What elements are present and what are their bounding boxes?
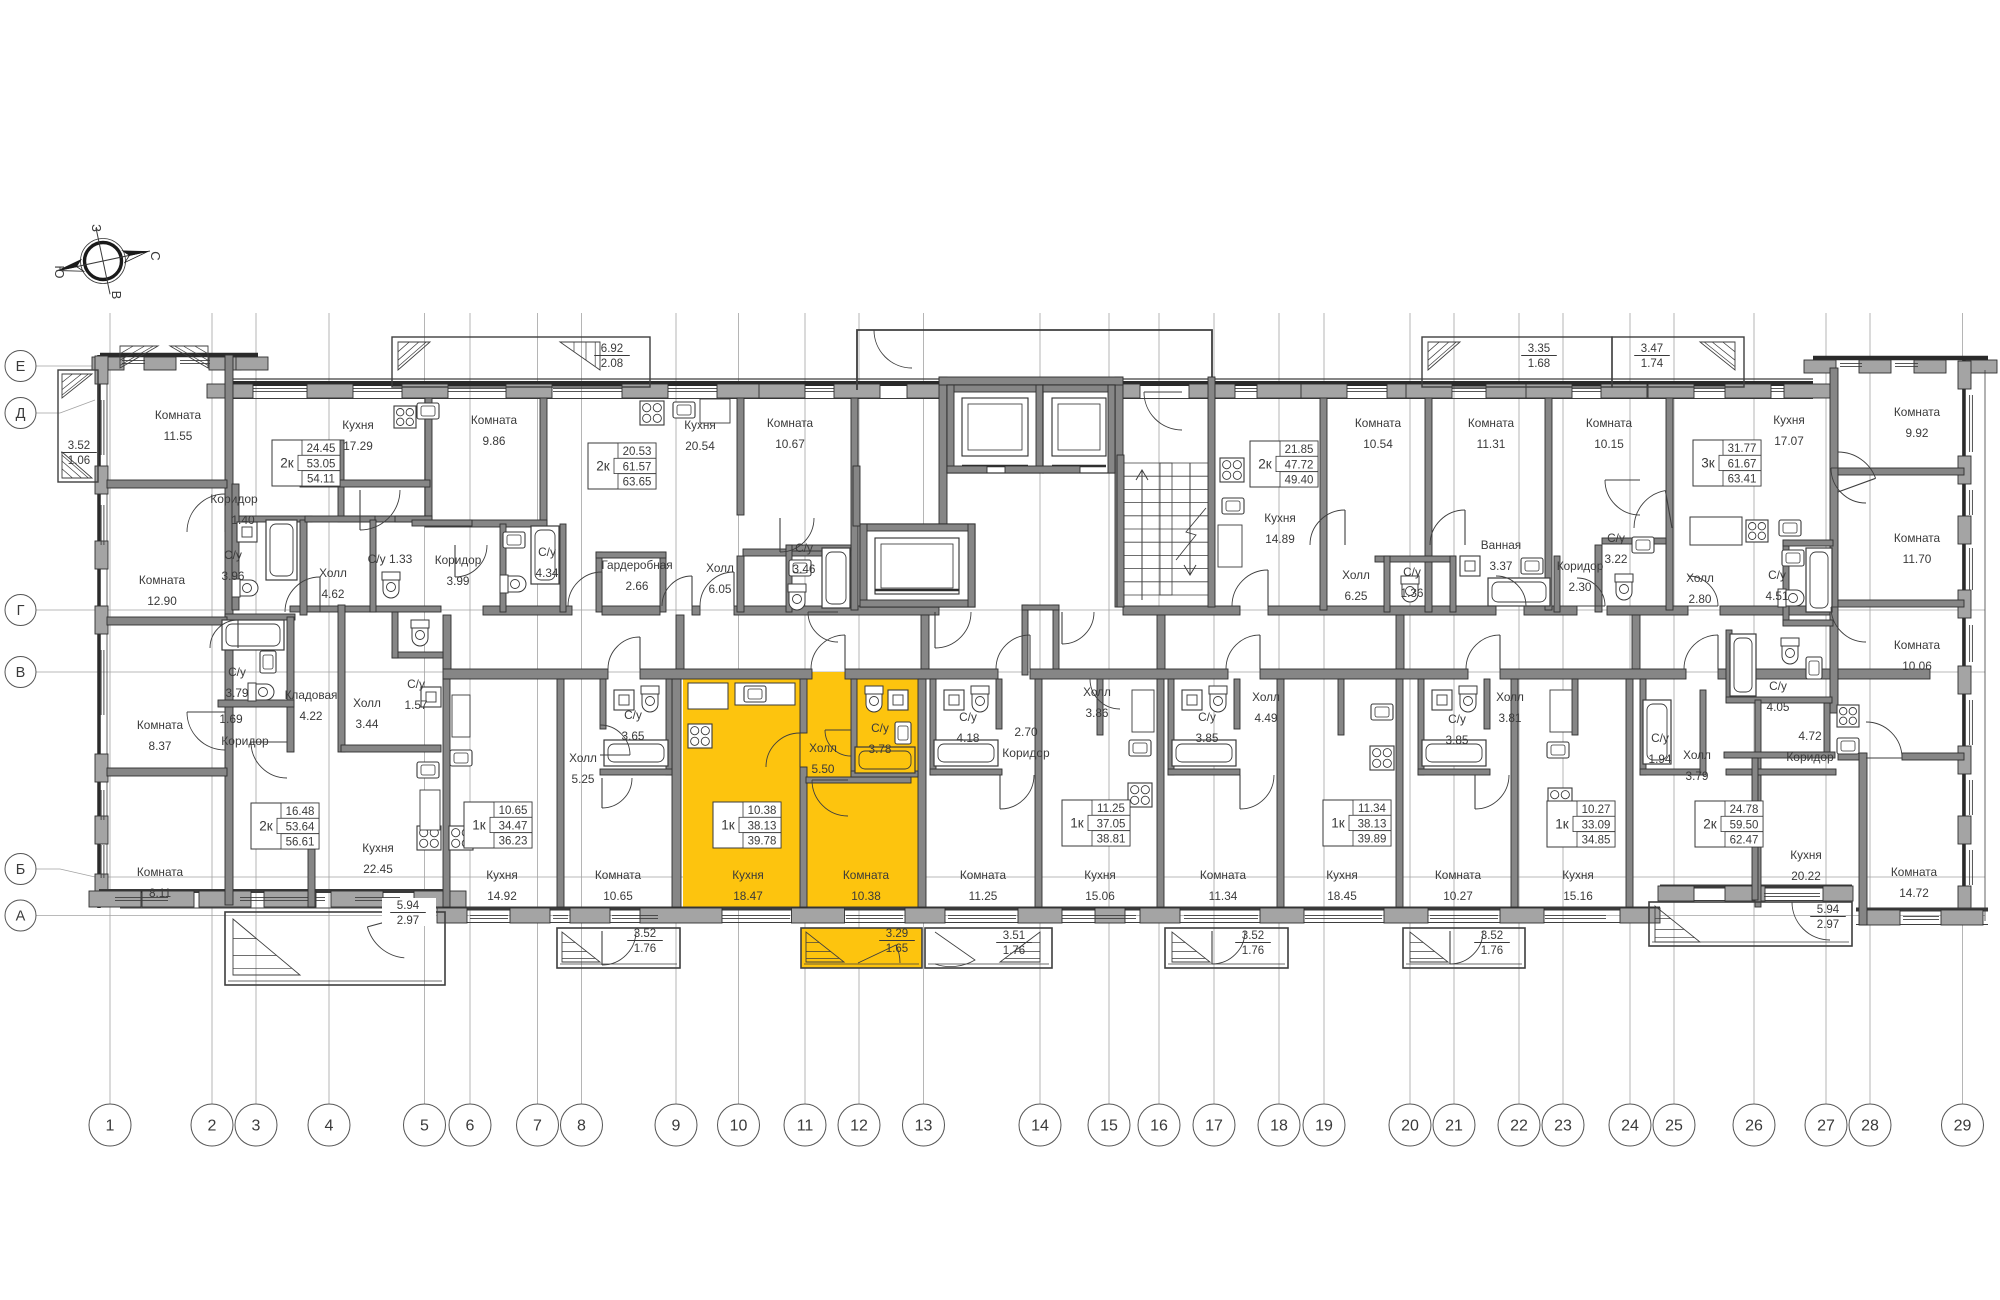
svg-text:4.62: 4.62 xyxy=(322,587,345,601)
svg-text:Коридор: Коридор xyxy=(221,734,269,748)
svg-text:1.74: 1.74 xyxy=(1641,358,1664,370)
svg-text:11: 11 xyxy=(797,1118,814,1135)
svg-text:8.11: 8.11 xyxy=(149,886,171,900)
svg-text:53.05: 53.05 xyxy=(307,458,336,470)
svg-text:Б: Б xyxy=(16,862,26,878)
svg-text:Комната: Комната xyxy=(767,416,814,430)
svg-text:14.72: 14.72 xyxy=(1899,886,1929,900)
svg-text:С/у: С/у xyxy=(1198,710,1216,724)
svg-text:А: А xyxy=(16,909,26,925)
svg-text:2к: 2к xyxy=(1703,817,1717,832)
svg-text:6.92: 6.92 xyxy=(601,343,623,355)
svg-text:4.49: 4.49 xyxy=(1255,711,1278,725)
svg-text:Комната: Комната xyxy=(1468,416,1515,430)
svg-text:Кухня: Кухня xyxy=(362,841,394,855)
svg-text:В: В xyxy=(16,665,26,681)
svg-text:Комната: Комната xyxy=(1894,638,1941,652)
svg-text:5.94: 5.94 xyxy=(1817,904,1840,916)
svg-text:9: 9 xyxy=(672,1118,681,1135)
svg-text:Холл: Холл xyxy=(1083,685,1111,699)
svg-text:С/у: С/у xyxy=(407,677,425,691)
svg-text:С/у: С/у xyxy=(228,665,246,679)
svg-text:29: 29 xyxy=(1954,1118,1972,1135)
svg-text:61.67: 61.67 xyxy=(1728,458,1757,470)
svg-text:31.77: 31.77 xyxy=(1728,443,1757,455)
svg-text:2.08: 2.08 xyxy=(601,358,623,370)
svg-text:10.27: 10.27 xyxy=(1443,889,1473,903)
svg-text:17: 17 xyxy=(1205,1118,1223,1135)
svg-text:Комната: Комната xyxy=(595,868,642,882)
svg-text:11.31: 11.31 xyxy=(1477,437,1506,451)
svg-text:36.23: 36.23 xyxy=(499,836,528,848)
svg-text:С/у: С/у xyxy=(1769,679,1787,693)
svg-text:Коридор: Коридор xyxy=(210,492,258,506)
svg-text:Холл: Холл xyxy=(1683,748,1711,762)
svg-text:63.65: 63.65 xyxy=(623,477,652,489)
svg-text:20.22: 20.22 xyxy=(1791,869,1821,883)
svg-text:С/у: С/у xyxy=(1651,731,1669,745)
svg-text:5.94: 5.94 xyxy=(397,900,420,912)
svg-text:Холл: Холл xyxy=(1496,690,1524,704)
svg-text:16: 16 xyxy=(1150,1118,1168,1135)
svg-text:3.37: 3.37 xyxy=(1490,559,1513,573)
svg-text:3.65: 3.65 xyxy=(622,729,645,743)
svg-text:12: 12 xyxy=(850,1118,868,1135)
svg-text:26: 26 xyxy=(1745,1118,1763,1135)
svg-text:2.97: 2.97 xyxy=(1817,919,1839,931)
svg-text:3.35: 3.35 xyxy=(1528,343,1550,355)
svg-text:20.54: 20.54 xyxy=(685,439,715,453)
svg-text:10.38: 10.38 xyxy=(748,805,777,817)
svg-text:1.65: 1.65 xyxy=(886,943,908,955)
svg-text:20: 20 xyxy=(1401,1118,1419,1135)
svg-text:С: С xyxy=(148,251,163,260)
svg-text:С/у: С/у xyxy=(624,708,642,722)
svg-text:С/у: С/у xyxy=(871,721,889,735)
svg-text:5.25: 5.25 xyxy=(572,772,595,786)
svg-text:56.61: 56.61 xyxy=(286,837,315,849)
svg-text:Комната: Комната xyxy=(1435,868,1482,882)
svg-text:18.47: 18.47 xyxy=(733,889,763,903)
svg-text:4.34: 4.34 xyxy=(536,566,559,580)
svg-text:22.45: 22.45 xyxy=(363,862,393,876)
svg-text:3.51: 3.51 xyxy=(1003,930,1025,942)
svg-text:3: 3 xyxy=(252,1118,261,1135)
svg-text:3.44: 3.44 xyxy=(356,717,379,731)
svg-text:24.78: 24.78 xyxy=(1730,804,1759,816)
svg-text:Кухня: Кухня xyxy=(684,418,716,432)
svg-text:6.05: 6.05 xyxy=(709,582,732,596)
svg-text:39.78: 39.78 xyxy=(748,836,777,848)
svg-text:С/у: С/у xyxy=(1448,712,1466,726)
svg-text:Г: Г xyxy=(17,603,25,619)
svg-text:4.05: 4.05 xyxy=(1767,700,1790,714)
svg-text:10.15: 10.15 xyxy=(1594,437,1624,451)
svg-text:Комната: Комната xyxy=(1586,416,1633,430)
svg-text:Холл: Холл xyxy=(1686,571,1714,585)
svg-text:Комната: Комната xyxy=(960,868,1007,882)
svg-text:Комната: Комната xyxy=(1355,416,1402,430)
svg-text:63.41: 63.41 xyxy=(1728,474,1757,486)
svg-text:С/у: С/у xyxy=(224,548,242,562)
svg-text:3.46: 3.46 xyxy=(793,562,816,576)
svg-text:2к: 2к xyxy=(596,459,610,474)
svg-text:11.34: 11.34 xyxy=(1209,889,1238,903)
svg-text:Холл: Холл xyxy=(809,741,837,755)
svg-text:Гардеробная: Гардеробная xyxy=(601,558,672,572)
svg-text:1.40: 1.40 xyxy=(231,513,255,527)
svg-text:Кухня: Кухня xyxy=(342,418,374,432)
svg-text:15.16: 15.16 xyxy=(1563,889,1593,903)
svg-text:3.52: 3.52 xyxy=(68,440,90,452)
svg-text:Комната: Комната xyxy=(137,718,184,732)
svg-text:24: 24 xyxy=(1621,1118,1639,1135)
svg-text:1.94: 1.94 xyxy=(1649,752,1672,766)
svg-text:12.90: 12.90 xyxy=(147,594,177,608)
svg-text:11.25: 11.25 xyxy=(1097,803,1125,815)
svg-text:59.50: 59.50 xyxy=(1730,819,1759,831)
svg-text:Кухня: Кухня xyxy=(1084,868,1116,882)
svg-text:Комната: Комната xyxy=(137,865,184,879)
svg-text:14.92: 14.92 xyxy=(487,889,517,903)
svg-text:10.27: 10.27 xyxy=(1582,804,1611,816)
svg-text:14: 14 xyxy=(1031,1118,1049,1135)
svg-text:20.53: 20.53 xyxy=(623,446,652,458)
svg-text:54.11: 54.11 xyxy=(307,474,335,486)
svg-text:25: 25 xyxy=(1665,1118,1683,1135)
svg-text:Кухня: Кухня xyxy=(1773,413,1805,427)
svg-text:3.85: 3.85 xyxy=(1196,731,1219,745)
svg-text:3.85: 3.85 xyxy=(1446,733,1469,747)
svg-text:Кухня: Кухня xyxy=(732,868,764,882)
svg-text:Холл: Холл xyxy=(569,751,597,765)
svg-text:38.13: 38.13 xyxy=(1358,818,1387,830)
svg-text:2к: 2к xyxy=(1258,457,1272,472)
svg-text:9.92: 9.92 xyxy=(1906,426,1929,440)
svg-text:17.29: 17.29 xyxy=(343,439,373,453)
svg-text:27: 27 xyxy=(1817,1118,1835,1135)
svg-text:С/у: С/у xyxy=(795,541,813,555)
svg-text:2.66: 2.66 xyxy=(626,579,649,593)
svg-text:Комната: Комната xyxy=(155,408,202,422)
svg-text:16.48: 16.48 xyxy=(286,806,315,818)
svg-text:38.13: 38.13 xyxy=(748,820,777,832)
svg-text:53.64: 53.64 xyxy=(286,821,315,833)
svg-text:Комната: Комната xyxy=(843,868,890,882)
svg-text:1.36: 1.36 xyxy=(1401,586,1424,600)
svg-text:С/у: С/у xyxy=(1403,565,1421,579)
svg-text:37.05: 37.05 xyxy=(1097,818,1126,830)
svg-text:С/у: С/у xyxy=(1768,568,1786,582)
svg-text:47.72: 47.72 xyxy=(1285,459,1314,471)
svg-text:2к: 2к xyxy=(259,819,273,834)
svg-text:11.25: 11.25 xyxy=(969,889,998,903)
svg-text:61.57: 61.57 xyxy=(623,461,652,473)
svg-text:10.38: 10.38 xyxy=(851,889,881,903)
svg-text:10.65: 10.65 xyxy=(603,889,633,903)
svg-text:Холл: Холл xyxy=(1252,690,1280,704)
svg-text:Кухня: Кухня xyxy=(486,868,518,882)
svg-text:2.97: 2.97 xyxy=(397,915,419,927)
svg-text:1: 1 xyxy=(106,1118,115,1135)
svg-text:3.47: 3.47 xyxy=(1641,343,1663,355)
svg-text:33.09: 33.09 xyxy=(1582,819,1611,831)
svg-text:С/у 1.33: С/у 1.33 xyxy=(368,552,413,566)
svg-text:19: 19 xyxy=(1315,1118,1333,1135)
svg-text:24.45: 24.45 xyxy=(307,443,336,455)
svg-text:3.78: 3.78 xyxy=(869,742,892,756)
svg-text:Д: Д xyxy=(16,406,26,422)
svg-text:1к: 1к xyxy=(1555,817,1569,832)
svg-text:4.72: 4.72 xyxy=(1798,729,1822,743)
svg-text:34.85: 34.85 xyxy=(1582,835,1611,847)
svg-text:Холл: Холл xyxy=(353,696,381,710)
svg-text:Кухня: Кухня xyxy=(1326,868,1358,882)
svg-text:3.79: 3.79 xyxy=(226,686,249,700)
svg-text:13: 13 xyxy=(915,1118,933,1135)
svg-text:Коридор: Коридор xyxy=(1557,559,1604,573)
svg-text:С/у: С/у xyxy=(959,710,977,724)
svg-text:1.76: 1.76 xyxy=(1481,945,1503,957)
svg-text:4.22: 4.22 xyxy=(300,709,323,723)
svg-text:Кладовая: Кладовая xyxy=(285,688,338,702)
svg-text:14.89: 14.89 xyxy=(1265,532,1295,546)
svg-text:9.86: 9.86 xyxy=(483,434,506,448)
svg-text:Комната: Комната xyxy=(1200,868,1247,882)
svg-text:1к: 1к xyxy=(721,818,735,833)
svg-text:Комната: Комната xyxy=(1891,865,1938,879)
svg-text:Коридор: Коридор xyxy=(1786,750,1834,764)
svg-text:4.18: 4.18 xyxy=(957,731,980,745)
svg-text:23: 23 xyxy=(1554,1118,1572,1135)
svg-text:3.79: 3.79 xyxy=(1686,769,1709,783)
svg-text:39.89: 39.89 xyxy=(1358,834,1387,846)
svg-text:18: 18 xyxy=(1270,1118,1288,1135)
svg-text:4: 4 xyxy=(325,1118,334,1135)
svg-text:6.25: 6.25 xyxy=(1345,589,1368,603)
svg-text:2: 2 xyxy=(208,1118,217,1135)
svg-text:3.22: 3.22 xyxy=(1605,552,1628,566)
svg-text:3.81: 3.81 xyxy=(1499,711,1522,725)
svg-text:Кухня: Кухня xyxy=(1562,868,1594,882)
svg-text:1.06: 1.06 xyxy=(68,455,90,467)
svg-text:1к: 1к xyxy=(472,818,486,833)
svg-text:11.55: 11.55 xyxy=(164,429,193,443)
svg-text:Холл: Холл xyxy=(319,566,347,580)
svg-text:3.52: 3.52 xyxy=(634,928,656,940)
svg-text:6: 6 xyxy=(466,1118,475,1135)
svg-text:22: 22 xyxy=(1510,1118,1528,1135)
svg-text:3.86: 3.86 xyxy=(1086,706,1109,720)
svg-text:10: 10 xyxy=(730,1118,748,1135)
svg-text:10.67: 10.67 xyxy=(775,437,805,451)
svg-text:1.76: 1.76 xyxy=(1242,945,1264,957)
svg-text:3.52: 3.52 xyxy=(1481,930,1503,942)
svg-text:С/у: С/у xyxy=(538,545,556,559)
svg-text:Комната: Комната xyxy=(1894,405,1941,419)
svg-text:1.69: 1.69 xyxy=(219,712,243,726)
svg-text:Коридор: Коридор xyxy=(435,553,482,567)
svg-text:5: 5 xyxy=(420,1118,429,1135)
svg-text:3.99: 3.99 xyxy=(447,574,470,588)
svg-text:4.51: 4.51 xyxy=(1766,589,1789,603)
svg-text:З: З xyxy=(89,224,104,232)
svg-text:1.57: 1.57 xyxy=(405,698,428,712)
svg-text:49.40: 49.40 xyxy=(1285,475,1314,487)
svg-text:8: 8 xyxy=(577,1118,586,1135)
svg-text:7: 7 xyxy=(533,1118,542,1135)
svg-text:15: 15 xyxy=(1100,1118,1118,1135)
svg-text:10.54: 10.54 xyxy=(1363,437,1393,451)
svg-text:10.65: 10.65 xyxy=(499,805,528,817)
svg-text:17.07: 17.07 xyxy=(1774,434,1804,448)
svg-text:С/у: С/у xyxy=(1607,531,1625,545)
svg-text:3к: 3к xyxy=(1701,456,1715,471)
svg-text:В: В xyxy=(109,291,124,300)
svg-text:3.29: 3.29 xyxy=(886,928,908,940)
svg-text:Холл: Холл xyxy=(1342,568,1370,582)
svg-text:10.06: 10.06 xyxy=(1902,659,1932,673)
svg-text:8.37: 8.37 xyxy=(149,739,172,753)
svg-text:Холл: Холл xyxy=(706,561,734,575)
svg-text:1к: 1к xyxy=(1331,816,1345,831)
svg-text:Кухня: Кухня xyxy=(1264,511,1296,525)
svg-text:2к: 2к xyxy=(280,456,294,471)
svg-text:38.81: 38.81 xyxy=(1097,834,1126,846)
svg-text:3.96: 3.96 xyxy=(222,569,245,583)
svg-text:11.34: 11.34 xyxy=(1358,803,1387,815)
svg-text:1.76: 1.76 xyxy=(1003,945,1025,957)
svg-text:Комната: Комната xyxy=(139,573,186,587)
svg-text:Коридор: Коридор xyxy=(1002,746,1050,760)
svg-text:5.50: 5.50 xyxy=(812,762,835,776)
svg-text:Комната: Комната xyxy=(471,413,518,427)
svg-text:34.47: 34.47 xyxy=(499,820,528,832)
svg-text:2.70: 2.70 xyxy=(1014,725,1038,739)
svg-text:21: 21 xyxy=(1445,1118,1463,1135)
svg-text:3.52: 3.52 xyxy=(1242,930,1264,942)
svg-text:2.30: 2.30 xyxy=(1569,580,1592,594)
svg-text:21.85: 21.85 xyxy=(1285,444,1314,456)
svg-text:28: 28 xyxy=(1861,1118,1879,1135)
svg-text:Ю: Ю xyxy=(52,265,67,278)
svg-text:11.70: 11.70 xyxy=(1903,552,1932,566)
svg-text:Комната: Комната xyxy=(1894,531,1941,545)
svg-text:1.68: 1.68 xyxy=(1528,358,1550,370)
svg-text:1к: 1к xyxy=(1070,816,1084,831)
svg-text:2.80: 2.80 xyxy=(1689,592,1712,606)
svg-text:Ванная: Ванная xyxy=(1481,538,1521,552)
svg-text:15.06: 15.06 xyxy=(1085,889,1115,903)
svg-text:Е: Е xyxy=(16,359,26,375)
svg-text:18.45: 18.45 xyxy=(1327,889,1357,903)
svg-text:Кухня: Кухня xyxy=(1790,848,1822,862)
svg-text:62.47: 62.47 xyxy=(1730,835,1759,847)
svg-text:1.76: 1.76 xyxy=(634,943,656,955)
